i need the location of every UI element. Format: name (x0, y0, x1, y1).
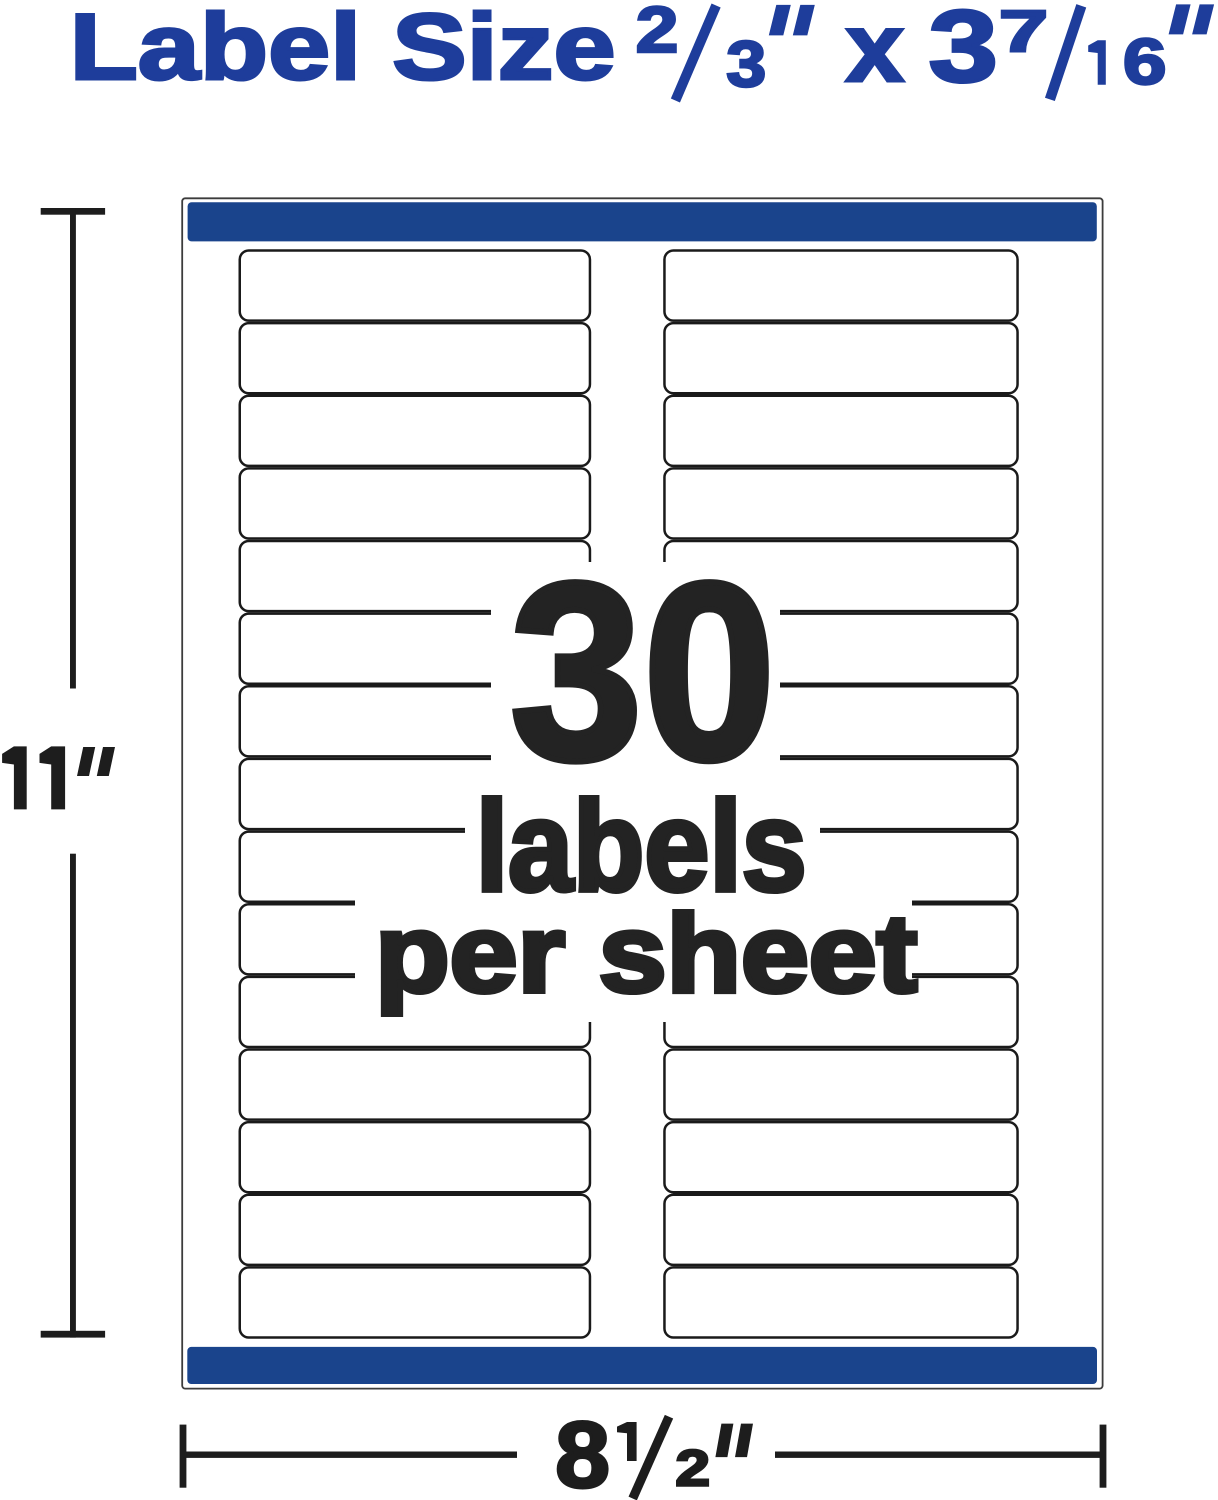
svg-text:2: 2 (636, 0, 679, 66)
svg-text:per sheet: per sheet (375, 893, 917, 1016)
svg-text:x: x (846, 0, 904, 102)
svg-text:2: 2 (675, 1440, 710, 1497)
svg-text:30: 30 (510, 530, 776, 813)
svg-text:8: 8 (555, 1402, 610, 1500)
svg-text:Label Size: Label Size (70, 0, 616, 99)
svg-text:7: 7 (999, 0, 1048, 64)
svg-text:3: 3 (726, 28, 766, 101)
svg-text:3: 3 (929, 0, 999, 104)
svg-text:6: 6 (1123, 25, 1167, 98)
